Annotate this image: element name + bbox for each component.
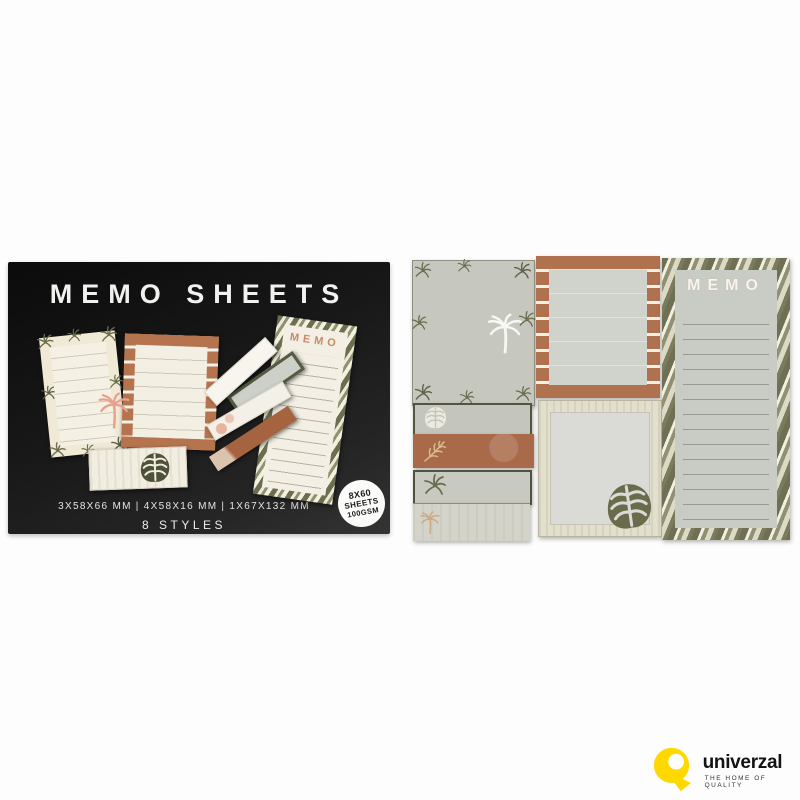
pad-writing-area xyxy=(549,269,647,385)
brand-logo: univerzal THE HOME OF QUALITY xyxy=(653,745,800,795)
palm-tree-icon xyxy=(484,303,526,365)
brand-text: univerzal THE HOME OF QUALITY xyxy=(703,753,800,789)
copper-border-square-pad xyxy=(536,256,660,398)
bottom-strip-sheet xyxy=(413,503,530,541)
palm-frond-icon xyxy=(513,262,532,281)
palm-frond-icon xyxy=(515,386,532,403)
memo-pad-heading: MEMO xyxy=(675,277,777,295)
ruled-lines xyxy=(683,310,769,520)
pad-writing-area: MEMO xyxy=(675,270,777,528)
palm-frond-icon xyxy=(414,384,433,403)
monstera-leaf-icon xyxy=(423,405,448,430)
styles-count-text: 8 STYLES xyxy=(8,518,360,532)
palm-frond-icon xyxy=(457,259,472,274)
memo-pad-heading: MEMO xyxy=(282,330,347,351)
brand-tagline: THE HOME OF QUALITY xyxy=(703,775,800,789)
dimensions-text: 3X58X66 MM | 4X58X16 MM | 1X67X132 MM xyxy=(8,501,360,512)
copper-strip-sheet xyxy=(413,434,534,468)
monstera-leaf-icon xyxy=(137,450,172,485)
memo-sheets-spread: MEMO xyxy=(412,256,790,542)
product-photo: MEMO SHEETS MEMO xyxy=(0,0,800,800)
q-logo-icon xyxy=(653,745,696,795)
palm-tree-icon xyxy=(418,508,442,538)
monstera-square-pad xyxy=(538,400,662,537)
palm-frond-icon xyxy=(411,315,428,332)
palm-tree-icon xyxy=(95,382,133,440)
fern-leaf-icon xyxy=(421,438,449,466)
palm-frond-icon xyxy=(66,328,82,344)
monstera-strip-sheet xyxy=(413,403,532,436)
brand-name: univerzal xyxy=(703,753,800,772)
palm-frond-icon xyxy=(423,474,447,498)
palm-frond-icon xyxy=(414,262,432,280)
memo-list-pad-tall: MEMO xyxy=(662,258,790,540)
box-collage: MEMO xyxy=(8,262,390,534)
pad-writing-area xyxy=(132,345,207,439)
palm-strip-sheet xyxy=(413,470,532,505)
monstera-leaf-icon xyxy=(600,477,659,536)
monstera-note-pad xyxy=(88,446,187,490)
palm-border-square-pad xyxy=(412,260,535,406)
packaging-box: MEMO SHEETS MEMO xyxy=(8,262,390,534)
